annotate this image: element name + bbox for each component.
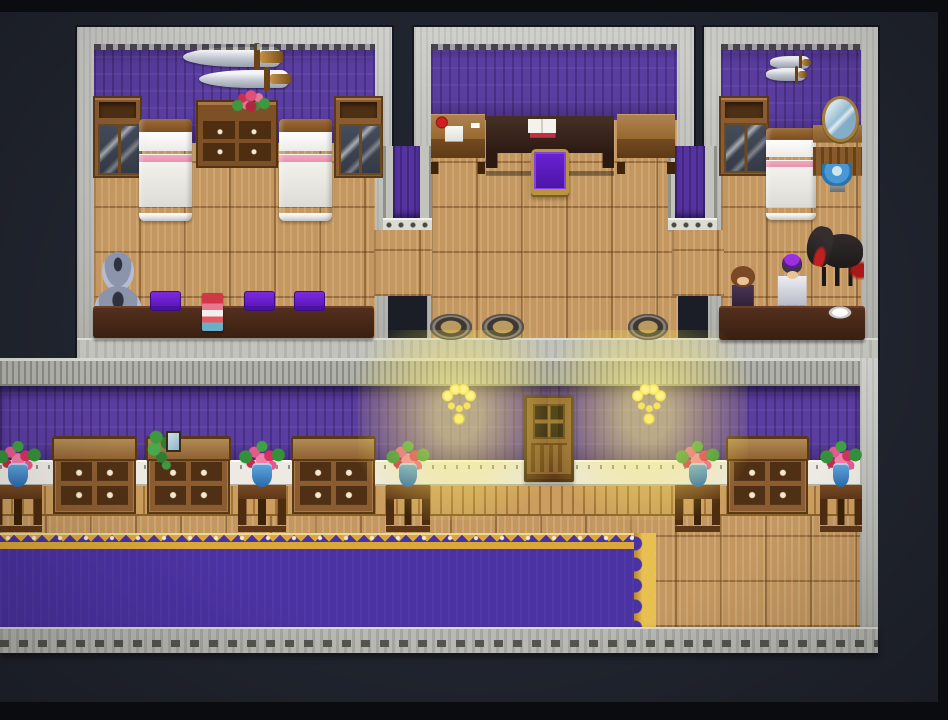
sideboard-4: [727, 436, 808, 514]
cushion-2: [244, 291, 275, 311]
wall-cabinet-east: [719, 96, 769, 176]
flower-stand-4: [675, 438, 720, 532]
cushion-1: [150, 291, 181, 311]
letterbox-right: [938, 0, 948, 720]
writing-desk-left: [431, 114, 485, 174]
water-basin: [822, 164, 852, 192]
bed-west-right: [279, 119, 332, 221]
bed-east: [766, 128, 816, 220]
sideboard-1: [53, 436, 136, 514]
floor-pot-2: [482, 314, 524, 340]
bed-west-left: [139, 119, 192, 221]
desk-chair: [531, 149, 569, 193]
black-horse[interactable]: [804, 226, 864, 286]
flower-stand-2: [238, 438, 286, 532]
long-table-west: [93, 306, 374, 338]
wall-cabinet-west-right: [334, 96, 383, 178]
floor-pot-1: [430, 314, 472, 340]
letterbox-bottom: [0, 702, 948, 720]
npc-attendant[interactable]: [729, 266, 757, 310]
floor-pot-3: [628, 314, 668, 340]
wall-cabinet-west-left: [93, 96, 142, 178]
letterbox-top: [0, 0, 948, 12]
book-stack: [202, 293, 223, 331]
writing-desk-right: [617, 114, 675, 174]
small-picture: [166, 431, 181, 452]
cushion-3: [294, 291, 325, 311]
white-dish: [828, 306, 852, 319]
flower-stand-5: [820, 438, 862, 532]
flower-stand-1: [0, 438, 42, 532]
flower-stand-3: [386, 438, 430, 532]
wall-sconce-left: [440, 382, 478, 428]
wall-sword-short: [199, 70, 289, 88]
wall-sword-long: [183, 47, 281, 67]
game-viewport: [0, 0, 948, 720]
dresser-flowers: [230, 88, 272, 118]
npc-knight[interactable]: [775, 256, 809, 310]
objects-layer: [0, 0, 948, 720]
hall-door[interactable]: [524, 395, 574, 482]
wall-sconce-right: [630, 382, 668, 428]
wall-dagger-bottom: [766, 68, 806, 81]
sideboard-3: [292, 436, 375, 514]
